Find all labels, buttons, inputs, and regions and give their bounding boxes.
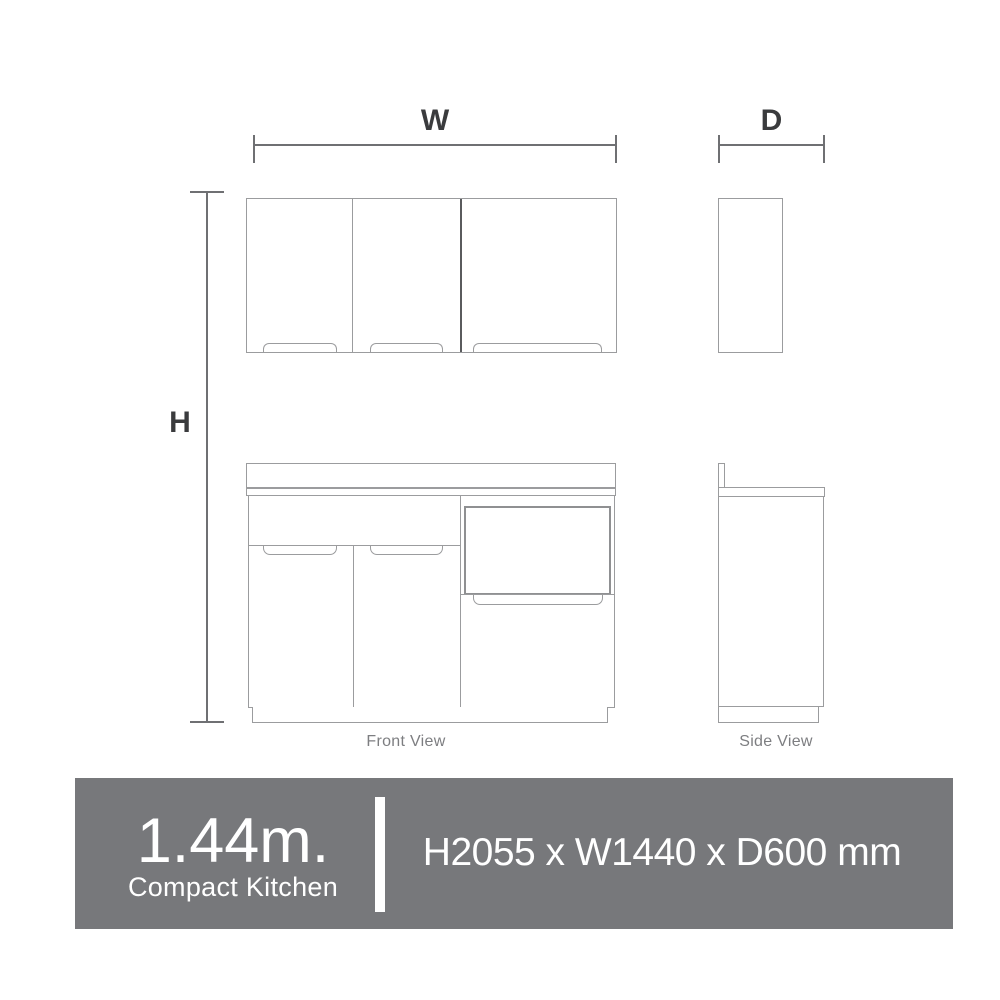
front-wall-cabinet xyxy=(246,198,617,353)
side-base-cabinet xyxy=(718,496,824,707)
spec-banner: 1.44m. Compact Kitchen H2055 x W1440 x D… xyxy=(75,778,953,929)
side-wall-cabinet xyxy=(718,198,783,353)
front-base-section-divider xyxy=(460,496,461,707)
width-dimension-tick-left xyxy=(253,135,255,163)
banner-divider-bar xyxy=(375,797,385,912)
width-dimension-label: W xyxy=(253,106,617,136)
side-view-label: Side View xyxy=(710,733,842,751)
side-backsplash xyxy=(718,463,725,488)
banner-product-name: Compact Kitchen xyxy=(75,874,391,901)
base-door-handle-left xyxy=(263,546,337,555)
side-plinth xyxy=(718,707,819,723)
height-dimension-label: H xyxy=(165,408,195,438)
wall-door-handle-middle xyxy=(370,343,443,352)
wall-door-handle-left xyxy=(263,343,337,352)
front-plinth xyxy=(252,707,608,723)
banner-spec-text: H2055 x W1440 x D600 mm xyxy=(412,833,912,872)
base-door-handle-middle xyxy=(370,546,443,555)
depth-dimension-label: D xyxy=(718,106,825,136)
front-base-door-divider xyxy=(353,546,354,707)
banner-size-text: 1.44m. xyxy=(75,810,391,873)
height-dimension-tick-bottom xyxy=(190,721,224,723)
height-dimension-tick-top xyxy=(190,191,224,193)
height-dimension-line xyxy=(206,192,208,723)
front-wall-cabinet-door-divider-left xyxy=(352,199,353,352)
front-view-label: Front View xyxy=(340,733,472,751)
width-dimension-line xyxy=(253,144,617,146)
depth-dimension-line xyxy=(718,144,825,146)
appliance-front-panel xyxy=(464,506,611,595)
front-wall-cabinet-door-divider-right xyxy=(460,199,462,352)
depth-dimension-tick-right xyxy=(823,135,825,163)
compact-kitchen-spec-diagram: W D H Front View Side View 1.44m. Comp xyxy=(0,0,1000,1000)
appliance-handle xyxy=(473,595,603,605)
depth-dimension-tick-left xyxy=(718,135,720,163)
width-dimension-tick-right xyxy=(615,135,617,163)
wall-door-handle-right xyxy=(473,343,602,352)
front-backsplash xyxy=(246,463,616,488)
